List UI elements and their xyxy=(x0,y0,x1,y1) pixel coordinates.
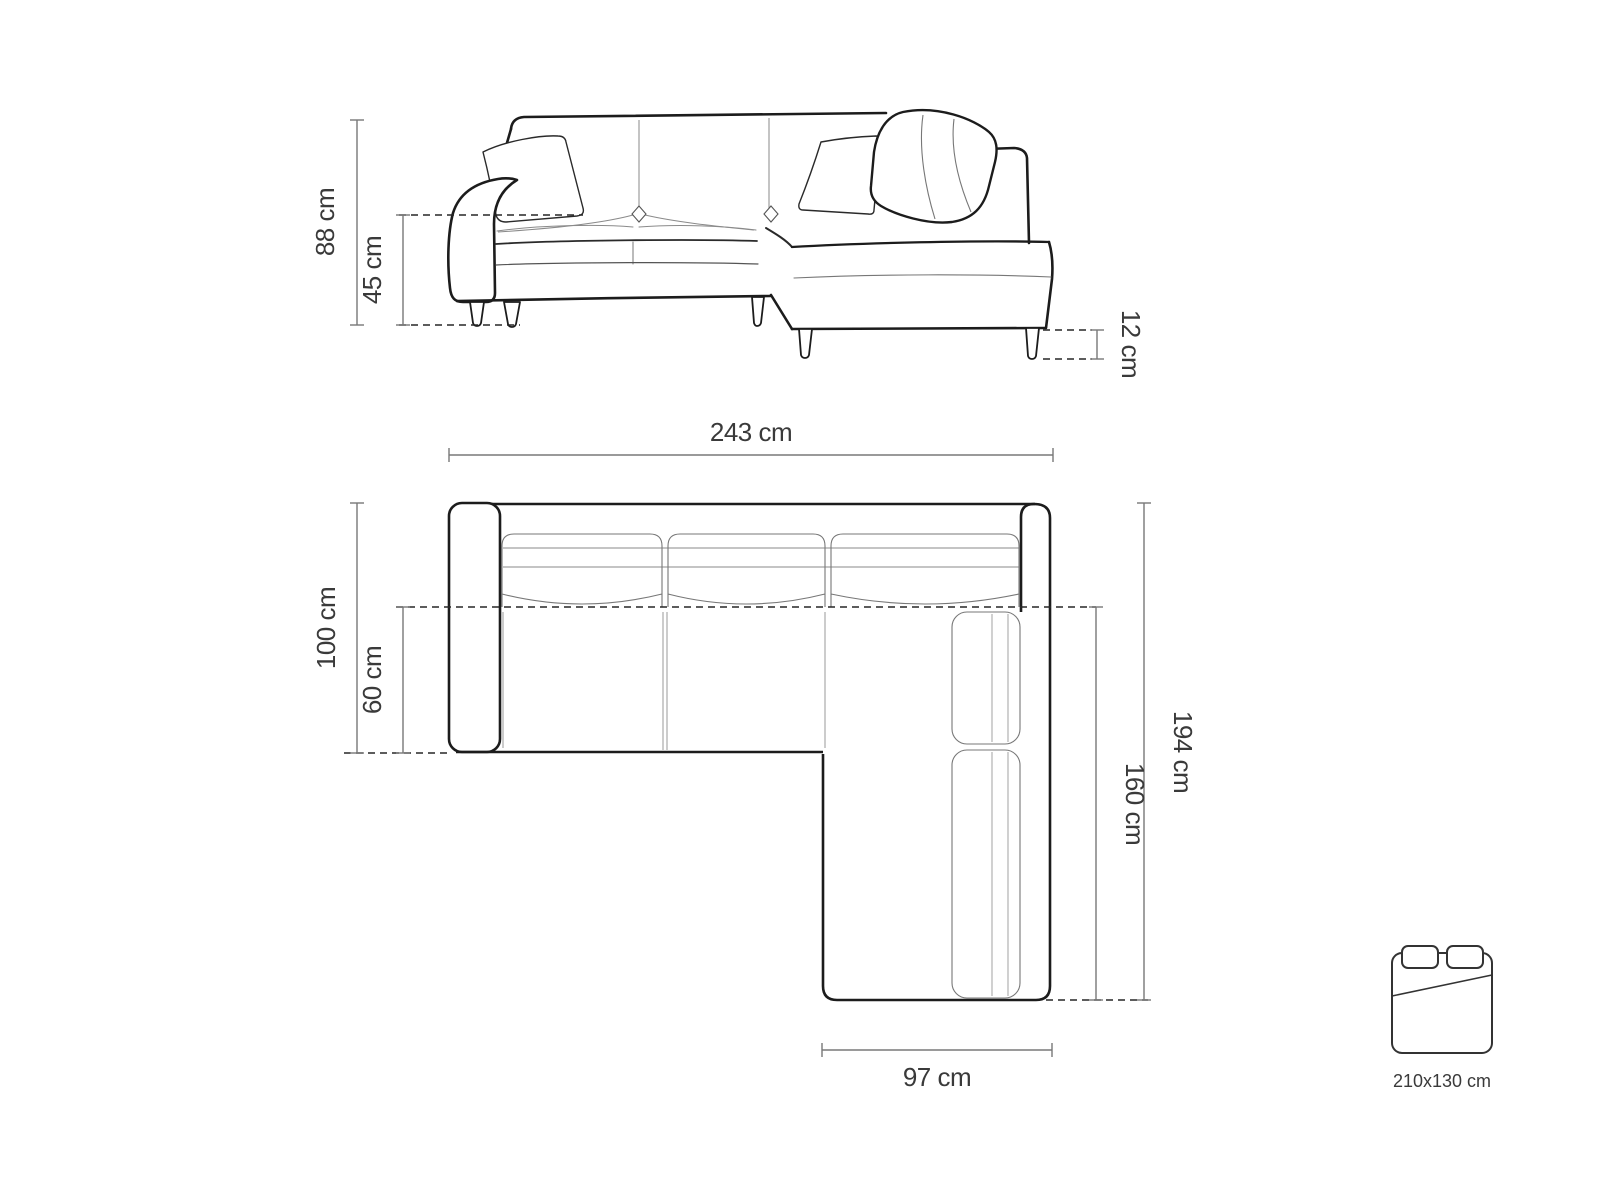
sleeping-area-size-label: 210x130 cm xyxy=(1393,1071,1491,1091)
front-height-label: 88 cm xyxy=(310,188,340,256)
dimension-160 xyxy=(1089,607,1103,1000)
plan-back-seams xyxy=(503,548,1019,567)
plan-back-cushion xyxy=(668,534,825,607)
dimension-45 xyxy=(396,215,410,325)
front-view: 88 cm 45 cm 12 cm xyxy=(310,110,1146,378)
front-leg-height-label: 12 cm xyxy=(1116,310,1146,378)
front-leg xyxy=(470,302,484,326)
plan-chaise-outline xyxy=(823,504,1050,1000)
back-seat-pinch-right xyxy=(764,206,778,222)
front-leg xyxy=(1026,328,1039,359)
front-chaise-section xyxy=(766,228,1052,329)
front-seat-section xyxy=(457,225,770,301)
dimension-97 xyxy=(822,1043,1052,1057)
top-view: 243 cm 100 cm 60 cm 194 cm 160 cm 97 cm xyxy=(311,417,1198,1092)
front-leg xyxy=(799,329,812,358)
front-leg xyxy=(752,297,764,326)
sofa-dimension-diagram: 88 cm 45 cm 12 cm xyxy=(0,0,1600,1200)
front-seat-height-label: 45 cm xyxy=(357,236,387,304)
plan-chaise-cushion xyxy=(952,750,1020,998)
bed-pillow xyxy=(1402,946,1438,968)
plan-chaise-width-label: 97 cm xyxy=(903,1062,971,1092)
plan-total-length-label: 194 cm xyxy=(1168,711,1198,793)
front-right-pillow xyxy=(799,136,880,214)
backrest-top-edge xyxy=(511,113,886,129)
plan-seat-seams xyxy=(503,612,825,750)
plan-seat-depth-label: 60 cm xyxy=(357,646,387,714)
plan-back-cushions xyxy=(502,534,1019,607)
front-dashed-lines xyxy=(399,215,1092,359)
plan-chaise-length-label: 160 cm xyxy=(1120,763,1150,845)
plan-left-armrest xyxy=(449,503,500,752)
diagram-svg: 88 cm 45 cm 12 cm xyxy=(0,0,1600,1200)
plan-back-cushion xyxy=(502,534,662,607)
plan-chaise-cushion xyxy=(952,612,1020,744)
plan-back-cushion xyxy=(831,534,1019,607)
dimension-194 xyxy=(1137,503,1151,1000)
dimension-60 xyxy=(396,607,410,753)
plan-depth-label: 100 cm xyxy=(311,587,341,669)
bed-pillow xyxy=(1447,946,1483,968)
plan-width-label: 243 cm xyxy=(710,417,792,447)
front-corner-cushion xyxy=(871,110,997,222)
dimension-12 xyxy=(1090,330,1104,359)
sleeping-area: 210x130 cm xyxy=(1392,946,1492,1091)
back-seat-pinch-left xyxy=(632,206,646,222)
plan-chaise-cushions xyxy=(952,612,1020,998)
bed-icon xyxy=(1392,946,1492,1053)
dimension-243 xyxy=(449,448,1053,462)
front-leg xyxy=(504,302,520,327)
dimension-100 xyxy=(350,503,364,753)
